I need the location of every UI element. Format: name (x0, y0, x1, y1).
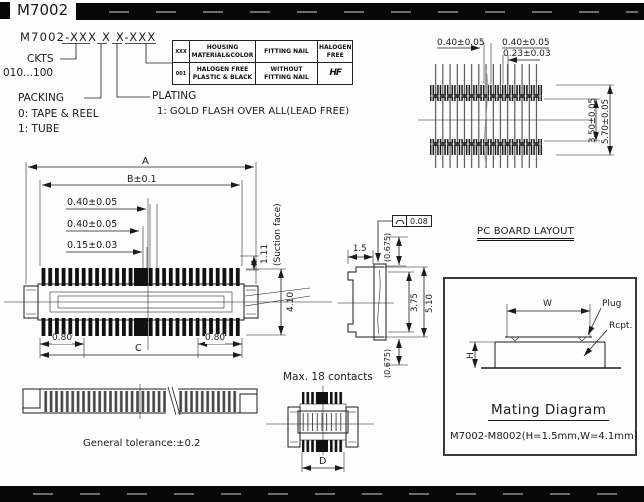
packing-option-tube: 1: TUBE (18, 124, 60, 136)
dim-suction-height: 1.11 (261, 244, 270, 264)
pcb-dim-pad-width: 0.23±0.03 (503, 50, 551, 60)
col-header-fitting-nail: FITTING NAIL (256, 41, 318, 63)
pcb-dim-pad-pitch: 0.40±0.05 (502, 39, 550, 49)
dim-d-label: D (319, 457, 326, 467)
pcb-dim-span-inner: 3.50±0.05 (589, 98, 598, 143)
mating-dim-w: W (543, 300, 552, 310)
halogen-free-logo-icon: HF (318, 63, 353, 85)
ckts-label: CKTS (27, 54, 53, 66)
side-dim-inner-height: 3.75 (411, 293, 420, 312)
pcb-dim-span-outer: 5.70±0.05 (602, 99, 611, 144)
flatness-value: 0.08 (407, 217, 431, 226)
footer-redacted-bar (0, 486, 644, 502)
plating-label: PLATING (152, 91, 196, 103)
suction-face-label: (Suction face) (274, 203, 283, 266)
pcb-layout-title: PC BOARD LAYOUT (477, 226, 574, 241)
dim-end-right: 0.80 (205, 334, 225, 344)
front-view-drawing (23, 384, 257, 419)
dim-end-left: 0.80 (52, 334, 72, 344)
flatness-tolerance-frame: 0.08 (392, 215, 432, 227)
header-left-block (0, 2, 10, 19)
plating-option: 1: GOLD FLASH OVER ALL(LEAD FREE) (157, 106, 349, 117)
side-dim-bottom-gap: (0.675) (384, 349, 392, 378)
side-dim-top-gap: (0.675) (384, 233, 392, 262)
cell-fitting-nail: WITHOUT FITTING NAIL (256, 63, 318, 85)
pcb-layout-drawing (418, 43, 614, 168)
ordering-part-code: M7002-XXX X X-XXX (20, 31, 157, 44)
mating-dim-h: H (467, 352, 476, 359)
packing-label: PACKING (18, 93, 64, 105)
cell-housing: HALOGEN FREE PLASTIC & BLACK (190, 63, 256, 85)
side-dim-outer-height: 5.10 (426, 294, 435, 313)
dim-c-label: C (135, 344, 142, 354)
options-table-row-001: 001 HALOGEN FREE PLASTIC & BLACK WITHOUT… (173, 63, 353, 85)
col-header-halogen-free: HALOGEN FREE (318, 41, 353, 63)
page-title: M7002 (17, 2, 68, 19)
dim-a-label: A (142, 156, 149, 167)
plug-label: Plug (602, 300, 621, 310)
options-table-header-row: XXX HOUSING MATERIAL&COLOR FITTING NAIL … (173, 41, 353, 63)
dim-pin-gap: 0.40±0.05 (67, 220, 117, 230)
profile-of-line-symbol-icon (393, 216, 407, 226)
max-contacts-note: Max. 18 contacts (283, 372, 373, 384)
dim-depth: 4.10 (287, 292, 296, 312)
mating-diagram-spec: M7002-M8002(H=1.5mm,W=4.1mm) (450, 431, 638, 442)
dim-pin-width: 0.15±0.03 (67, 241, 117, 251)
col-header-code: XXX (173, 41, 190, 63)
pcb-dim-pitch: 0.40±0.05 (437, 39, 485, 49)
side-dim-width: 1.5 (353, 245, 367, 254)
dim-pin-pitch: 0.40±0.05 (67, 198, 117, 208)
options-table: XXX HOUSING MATERIAL&COLOR FITTING NAIL … (172, 40, 353, 85)
packing-option-tape-reel: 0: TAPE & REEL (18, 109, 99, 121)
dim-b-label: B±0.1 (127, 175, 157, 185)
mating-diagram-title: Mating Diagram (488, 403, 609, 421)
ckts-range: 010...100 (3, 68, 53, 80)
cell-code: 001 (173, 63, 190, 85)
header-redacted-bar (76, 3, 644, 20)
col-header-housing: HOUSING MATERIAL&COLOR (190, 41, 256, 63)
rcpt-label: Rcpt. (609, 322, 632, 332)
datasheet-page: M7002 M7002-XXX X X-XXX CKTS 010...100 P… (0, 0, 644, 502)
general-tolerance-note: General tolerance:±0.2 (83, 438, 200, 449)
